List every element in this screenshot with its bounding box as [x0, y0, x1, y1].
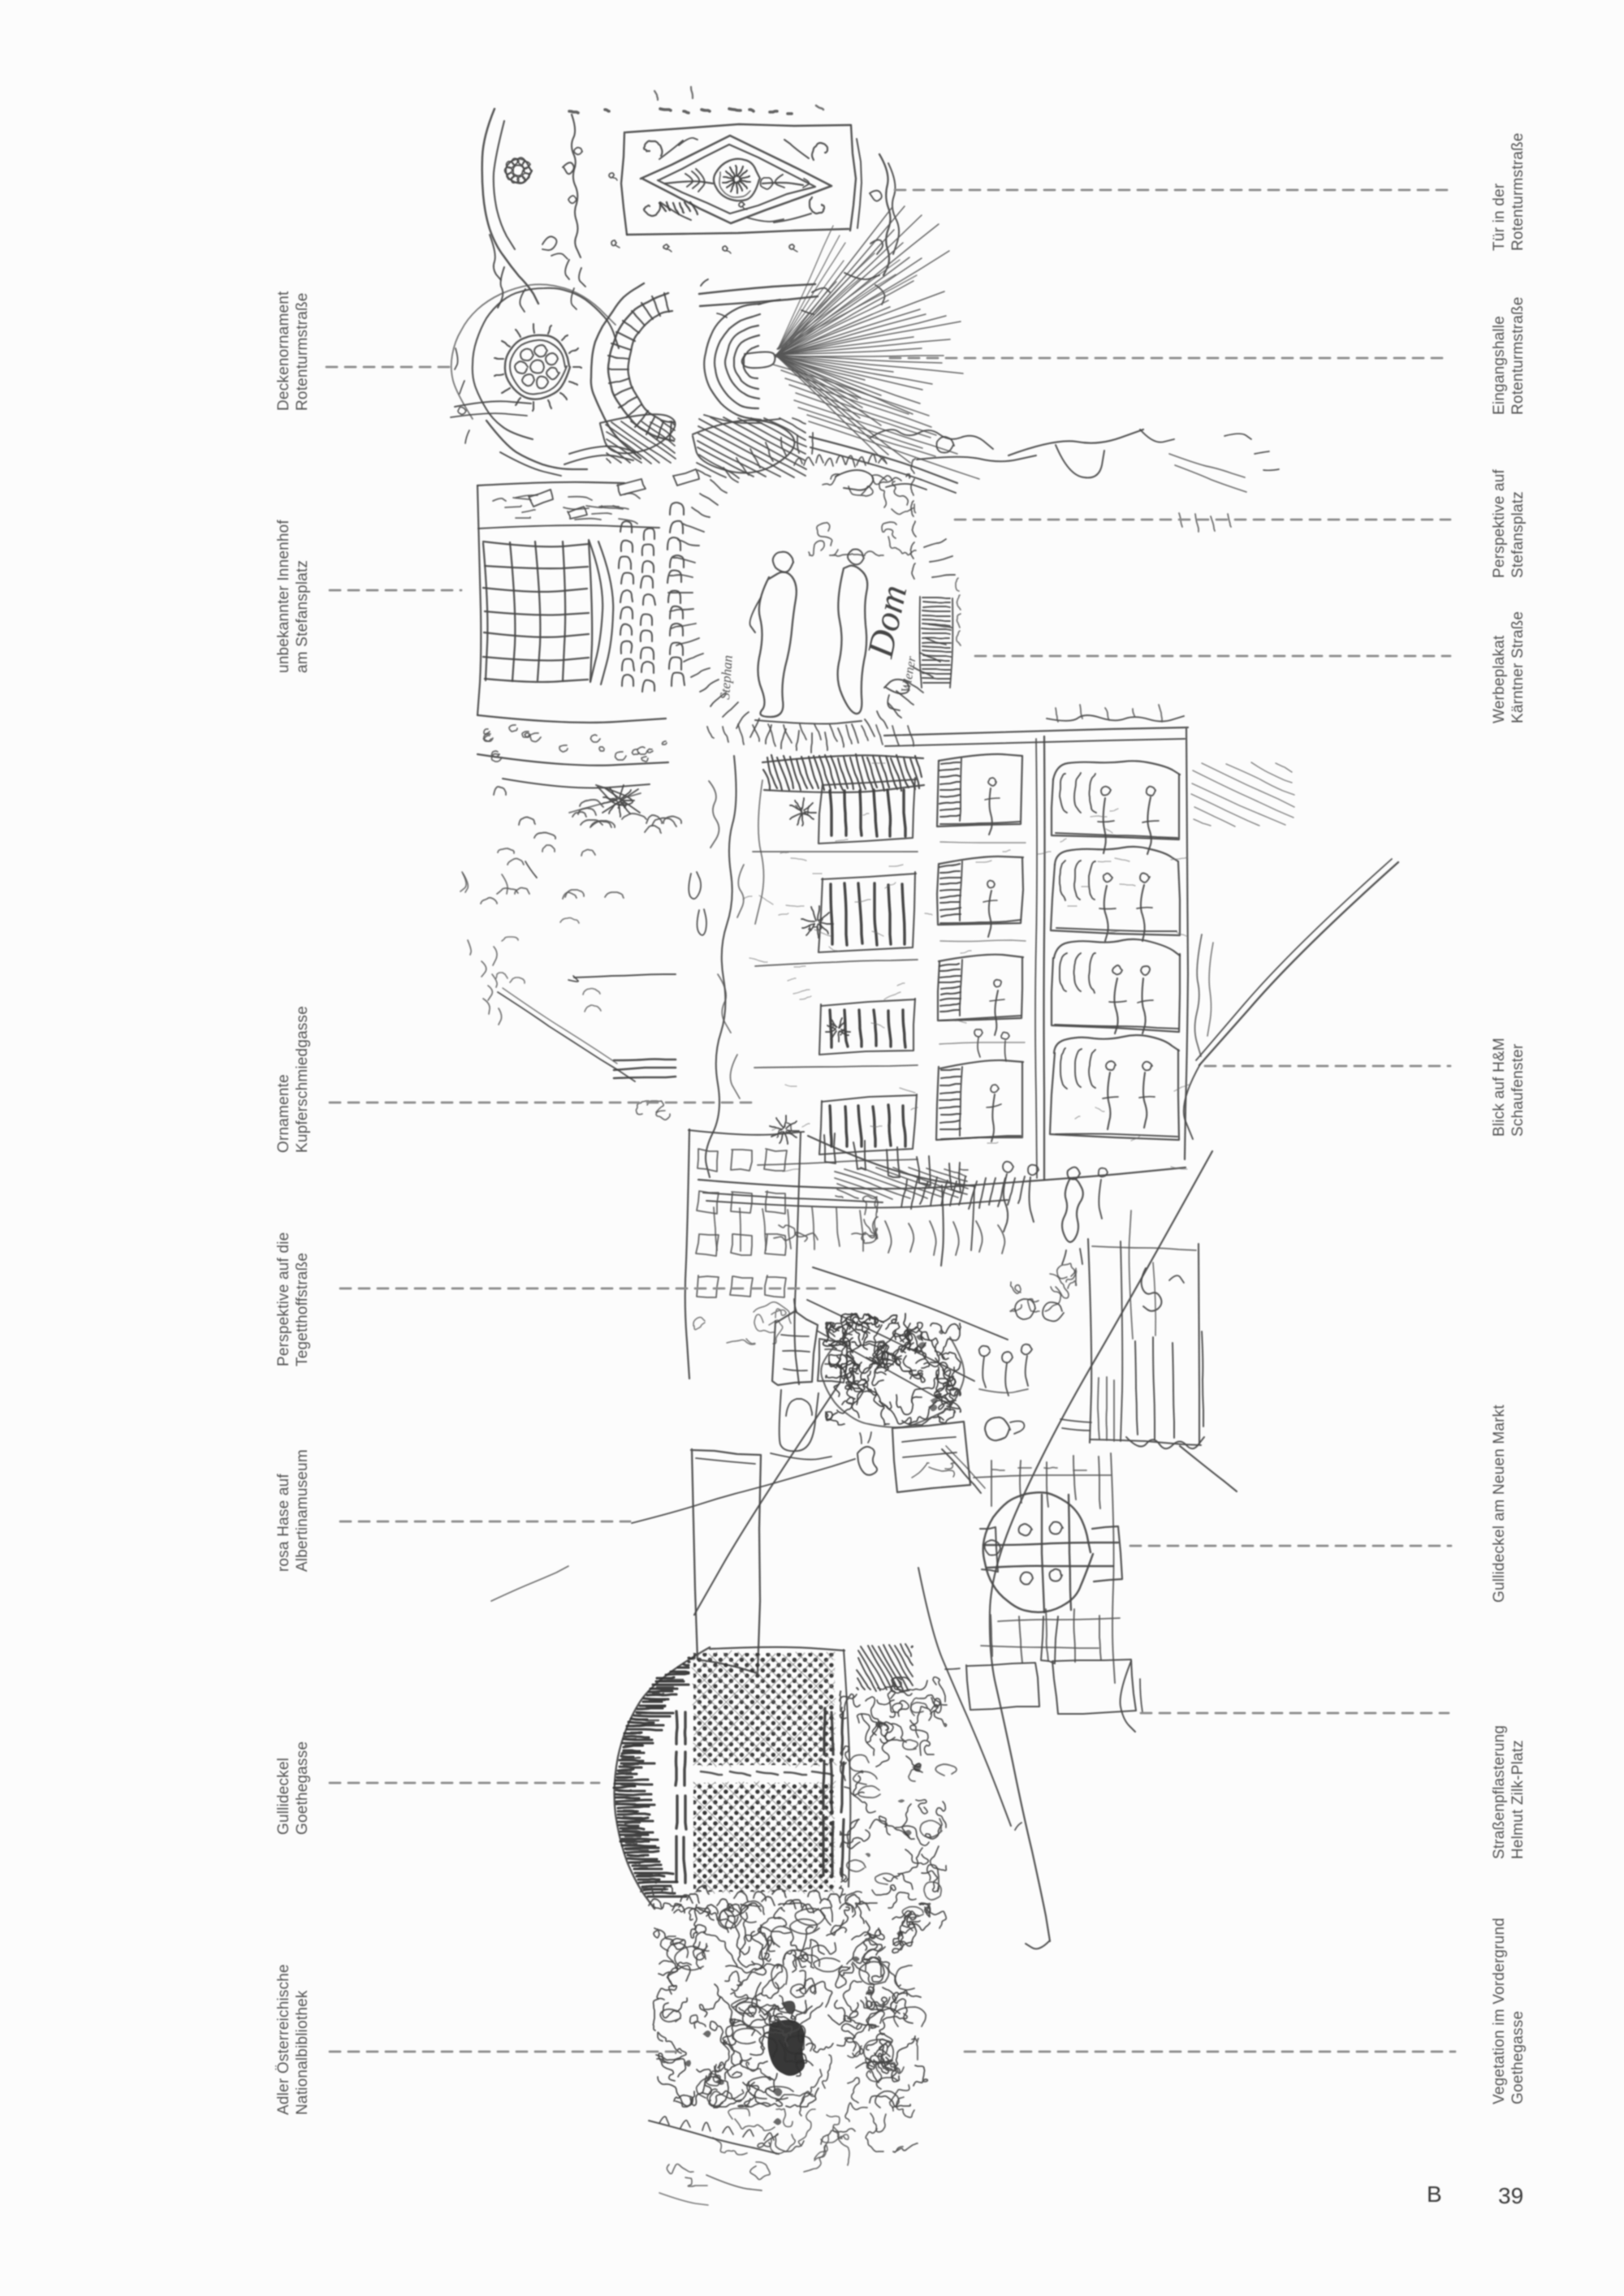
svg-text:Rotenturmstraße: Rotenturmstraße: [1510, 296, 1527, 415]
svg-text:Tür in der: Tür in der: [1491, 183, 1508, 251]
svg-text:Perspektive auf: Perspektive auf: [1491, 469, 1508, 578]
svg-text:Tegetthoffstraße: Tegetthoffstraße: [294, 1253, 311, 1366]
svg-text:Perspektive auf die: Perspektive auf die: [275, 1232, 292, 1366]
svg-text:rosa Hase auf: rosa Hase auf: [275, 1474, 292, 1572]
svg-text:Ornamente: Ornamente: [275, 1074, 292, 1153]
svg-text:Adler Österreichische: Adler Österreichische: [275, 1964, 292, 2115]
svg-text:Stefansplatz: Stefansplatz: [1510, 491, 1527, 578]
svg-text:Nationalbibliothek: Nationalbibliothek: [294, 1990, 311, 2115]
svg-text:Straßenpflasterung: Straßenpflasterung: [1491, 1725, 1508, 1859]
svg-text:Deckenornament: Deckenornament: [275, 291, 292, 411]
svg-text:B: B: [1427, 2182, 1442, 2207]
svg-text:Blick auf H&M: Blick auf H&M: [1491, 1038, 1508, 1137]
svg-text:Werbeplakat: Werbeplakat: [1491, 635, 1508, 723]
svg-text:Albertinamuseum: Albertinamuseum: [294, 1449, 311, 1572]
svg-text:Kupferschmiedgasse: Kupferschmiedgasse: [294, 1006, 311, 1153]
svg-text:Eingangshalle: Eingangshalle: [1491, 316, 1508, 415]
svg-text:Stephan: Stephan: [717, 654, 736, 700]
svg-text:Rotenturmstraße: Rotenturmstraße: [1510, 132, 1527, 251]
svg-text:unbekannter Innenhof: unbekannter Innenhof: [275, 520, 292, 673]
svg-text:Helmut Zilk-Platz: Helmut Zilk-Platz: [1510, 1740, 1527, 1859]
svg-text:Wiener: Wiener: [899, 654, 919, 693]
svg-text:Schaufenster: Schaufenster: [1510, 1043, 1527, 1137]
svg-text:Vegetation im Vordergrund: Vegetation im Vordergrund: [1491, 1918, 1508, 2104]
svg-text:39: 39: [1498, 2183, 1523, 2208]
svg-text:Rotenturmstraße: Rotenturmstraße: [294, 292, 311, 411]
svg-text:Goethegasse: Goethegasse: [1510, 2011, 1527, 2104]
svg-text:Gullideckel am Neuen Markt: Gullideckel am Neuen Markt: [1491, 1405, 1508, 1603]
svg-text:am Stefansplatz: am Stefansplatz: [294, 560, 311, 673]
svg-text:Goethegasse: Goethegasse: [294, 1741, 311, 1835]
svg-text:Kärntner Straße: Kärntner Straße: [1510, 611, 1527, 723]
svg-text:Gullideckel: Gullideckel: [275, 1758, 292, 1835]
